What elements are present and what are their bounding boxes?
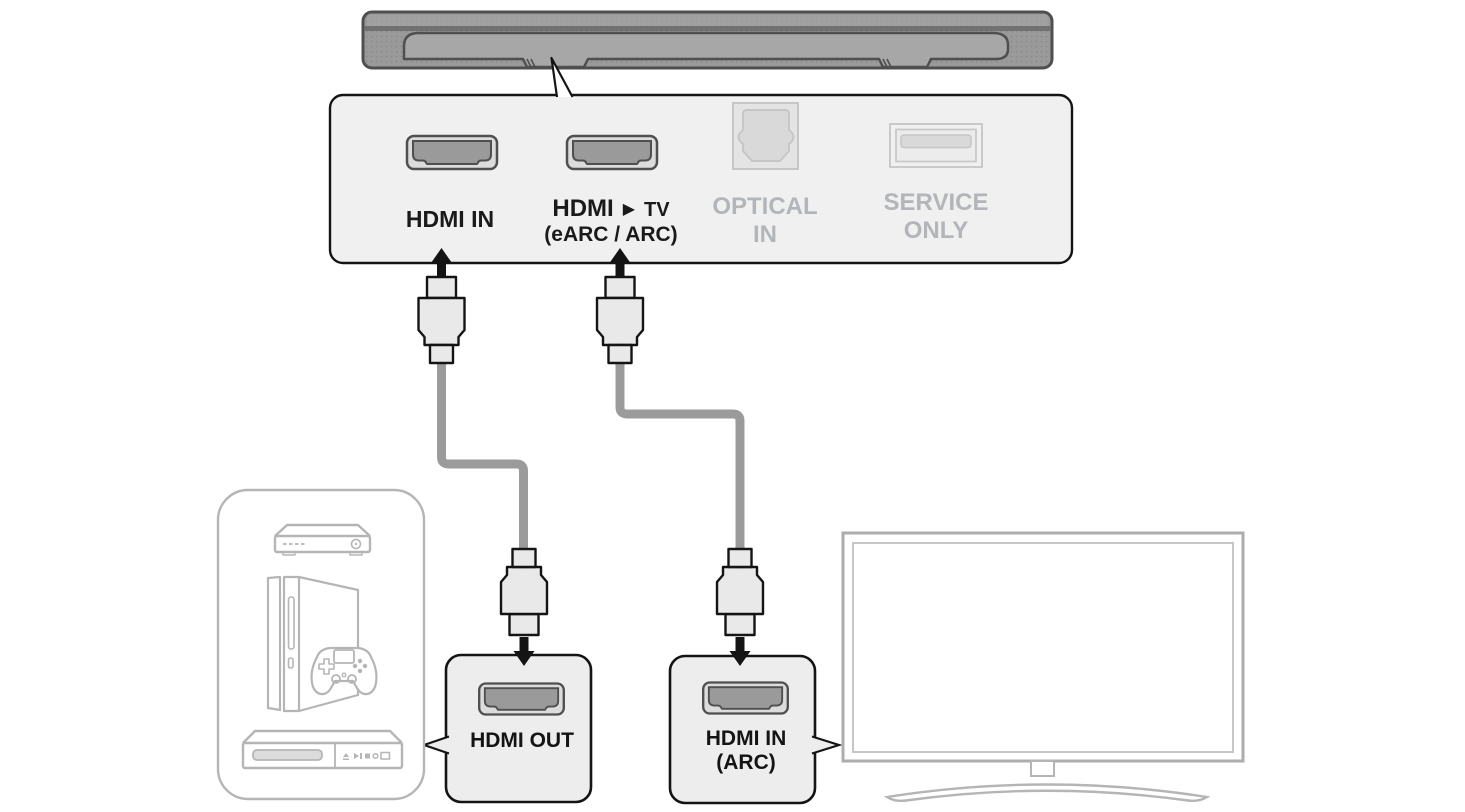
optical-in-port-icon <box>733 103 798 169</box>
hdmi-cable-left <box>442 362 524 556</box>
tv-stand-base <box>887 785 1207 801</box>
soundbar-illustration <box>363 12 1052 68</box>
hdmi-out-label: HDMI OUT <box>470 729 574 752</box>
right-triangle-icon: ▶ <box>623 201 636 218</box>
hdmi-out-callout: HDMI OUT <box>424 655 591 802</box>
optical-in-label-line2: IN <box>753 221 777 248</box>
callout-tail-left <box>424 737 449 754</box>
hdmi-tv-label: HDMI▶TV <box>552 195 670 222</box>
optical-in-label-line1: OPTICAL <box>712 193 817 220</box>
hdmi-in-arc-port-icon <box>703 682 788 713</box>
hdmi-in-arc-callout: HDMI IN (ARC) <box>670 656 839 803</box>
tv-illustration <box>843 533 1243 801</box>
tv-stand-neck <box>1031 761 1054 776</box>
hdmi-tv-sublabel: (eARC / ARC) <box>544 223 677 246</box>
hdmi-tv-port-icon <box>567 136 657 169</box>
hdmi-in-arc-label-line2: (ARC) <box>716 751 775 774</box>
soundbar-seam <box>364 26 1051 31</box>
soundbar-connection-diagram: HDMI IN HDMI▶TV (eARC / ARC) OPTICAL IN … <box>0 0 1465 812</box>
tv-screen <box>843 533 1243 761</box>
source-devices-box <box>218 490 424 799</box>
hdmi-in-arc-label-line1: HDMI IN <box>706 727 787 750</box>
hdmi-plug-down-left <box>501 549 547 635</box>
hdmi-out-port-icon <box>479 683 564 714</box>
hdmi-plug-up-left <box>419 277 465 363</box>
connection-diagram-page: HDMI IN HDMI▶TV (eARC / ARC) OPTICAL IN … <box>0 0 1465 812</box>
callout-tail-right <box>812 737 839 754</box>
hdmi-cable-right <box>620 362 740 556</box>
soundbar-top-face <box>367 15 1048 26</box>
hdmi-plug-up-right <box>597 277 643 363</box>
hdmi-in-label: HDMI IN <box>406 206 494 232</box>
service-label-line1: SERVICE <box>884 189 989 216</box>
hdmi-plug-down-right <box>717 549 763 635</box>
service-usb-port-icon <box>890 124 982 167</box>
service-label-line2: ONLY <box>904 217 968 244</box>
hdmi-in-port-icon <box>407 136 497 169</box>
